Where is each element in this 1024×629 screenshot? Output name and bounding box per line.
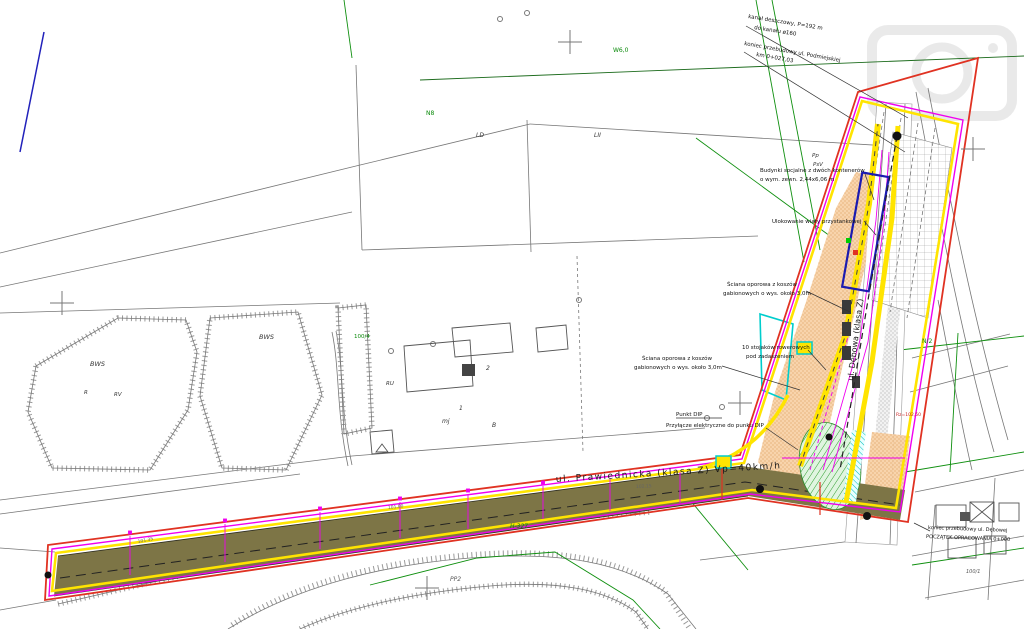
annotation-label: 10 stojaków rowerowych (742, 344, 810, 351)
parcel-label: N8 (426, 110, 434, 117)
parcel-label: RV (114, 392, 123, 398)
parcel-label: H-327 (510, 523, 528, 530)
annotation-label: gabionowych o wys. około 3,0m (634, 365, 722, 371)
annotation-label: Punkt DIP (676, 412, 703, 418)
parcel-label: BWS (259, 333, 274, 341)
annotation-label: gabionowych o wys. około 3,0m (723, 291, 811, 297)
site-plan-page: kanał deszczowy, P=192 mdo kanału ø160ko… (0, 0, 1024, 629)
parcel-label: BWS (90, 360, 105, 368)
parcel-label: PsV (813, 162, 824, 168)
elevation-label: 102.15 (636, 483, 652, 490)
parcel-label: R (84, 390, 88, 396)
parcel-label: W6,0 (613, 47, 629, 54)
parcel-label: PP2 (450, 576, 461, 583)
parcel-label: LII (594, 132, 601, 139)
annotation-label: Ściana oporowa z koszów (727, 281, 797, 288)
elevation-label: Rz=102,50 (896, 412, 921, 418)
annotation-label: pod zadaszeniem (746, 354, 794, 360)
annotation-label: Ściana oporowa z koszów (642, 355, 712, 362)
parcel-label: 2 (486, 365, 490, 372)
buildings-centre (370, 323, 568, 454)
annotation-label: Budynki socjalne z dwóch kontenerów (760, 167, 865, 174)
annotation-label: Ulokowanie wiaty przystankowej (772, 219, 862, 225)
site-plan-map: kanał deszczowy, P=192 mdo kanału ø160ko… (0, 0, 1024, 629)
parcel-label: Pp (812, 153, 819, 159)
parcel-label: LD (476, 132, 484, 139)
slope-hatched-parcels (28, 305, 372, 470)
parcel-label: 1 (459, 405, 463, 412)
parcel-label: RU (386, 381, 394, 387)
annotation-label: Przyłącze elektryczne do punku DIP (666, 423, 764, 429)
annotation-label: POCZĄTEK OPRACOWANIA 0+000 (926, 534, 1010, 543)
annotation-label: koniec przebudowy ul. Dębowej (928, 525, 1008, 534)
annotation-label: do kanału ø160 (754, 25, 797, 38)
parcel-label: B (492, 422, 496, 429)
parcel-label: 100/4 (354, 334, 370, 340)
parcel-label: mj (442, 418, 450, 425)
parcel-label: 100/1 (966, 569, 980, 575)
geodetic-blue-line (20, 32, 44, 152)
annotation-label: o wym. zewn. 2,44x6,06 m (760, 177, 834, 183)
parcel-label: N/2 (922, 338, 933, 345)
